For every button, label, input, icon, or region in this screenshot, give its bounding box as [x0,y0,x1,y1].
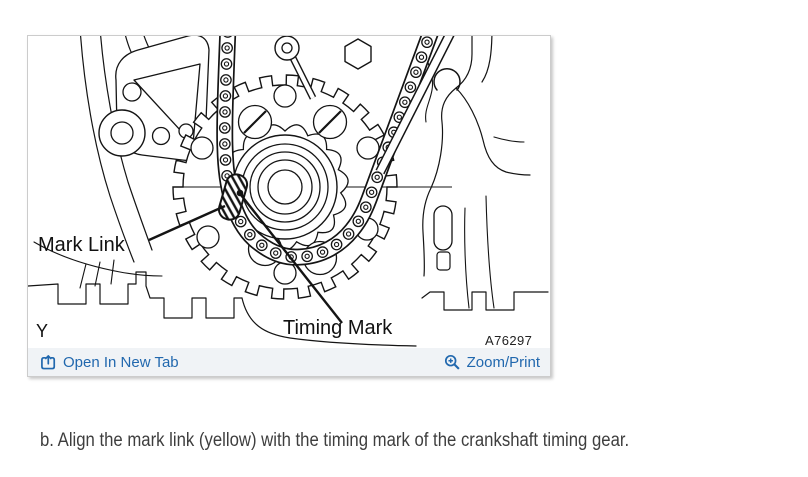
diagram-line [422,292,548,310]
diagram-line [486,196,494,308]
open-in-new-tab-icon [40,354,57,371]
diagram-line [482,36,492,82]
open-in-new-tab-link[interactable]: Open In New Tab [40,354,179,371]
open-in-new-tab-label: Open In New Tab [63,354,179,371]
diagram-line [28,272,242,318]
zoom-print-link[interactable]: Zoom/Print [444,354,540,371]
diagram-line [345,39,371,69]
mark-link-label: Mark Link [38,234,125,257]
instruction-caption: b. Align the mark link (yellow) with the… [40,430,629,452]
diagram-line [456,88,530,175]
diagram-line [111,260,114,284]
figure-toolbar: Open In New Tab Zoom/Print [28,348,550,376]
view-letter-label: Y [36,321,48,342]
diagram-line [494,137,524,142]
diagram-line [434,69,460,90]
diagram-line [80,264,86,288]
magnifier-plus-icon [444,354,461,371]
figure-panel: Mark Link Timing Mark Y A76297 Open In N… [27,35,551,377]
zoom-print-label: Zoom/Print [467,354,540,371]
engine-timing-diagram [28,36,550,348]
diagram-canvas: Mark Link Timing Mark Y A76297 [28,36,550,348]
figure-code-label: A76297 [485,333,532,348]
timing-mark-label: Timing Mark [283,317,392,340]
diagram-line [465,208,469,308]
diagram-line [95,262,100,286]
